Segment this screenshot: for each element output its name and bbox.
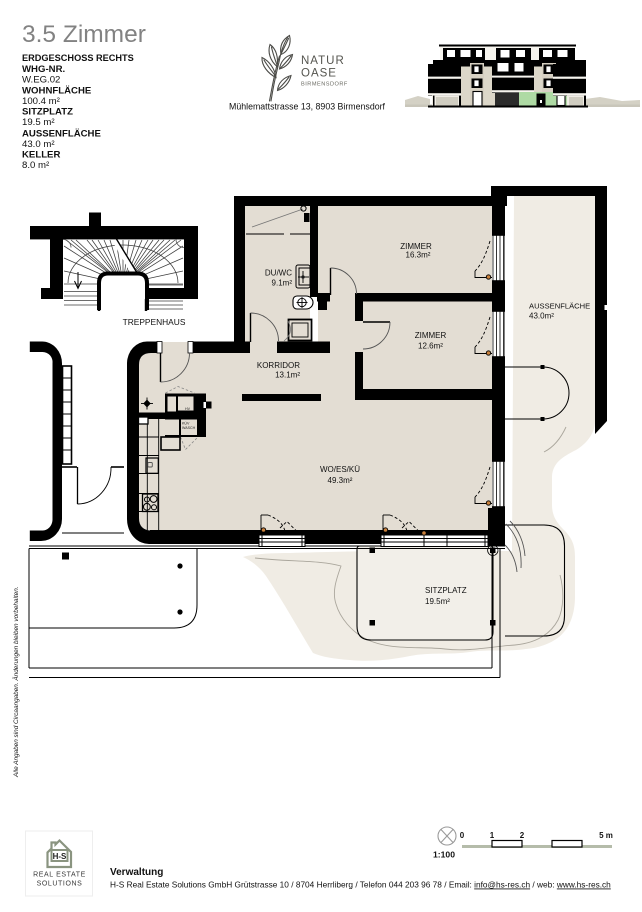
svg-text:WOHNFLÄCHE: WOHNFLÄCHE [22,86,92,97]
svg-text:16.3m²: 16.3m² [406,251,431,260]
svg-text:1: 1 [490,831,495,840]
svg-text:H-S: H-S [53,852,67,861]
svg-text:8.0 m²: 8.0 m² [22,160,50,171]
svg-text:REAL ESTATE: REAL ESTATE [33,872,86,879]
svg-text:WHG-NR.: WHG-NR. [22,64,65,75]
svg-text:9.1m²: 9.1m² [272,279,293,288]
svg-text:12.6m²: 12.6m² [418,342,443,351]
svg-text:HV: HV [185,407,191,411]
svg-text:100.4 m²: 100.4 m² [22,96,61,107]
svg-text:SITZPLATZ: SITZPLATZ [22,107,73,118]
svg-text:19.5m²: 19.5m² [425,597,450,606]
svg-text:WO/ES/KÜ: WO/ES/KÜ [320,465,360,474]
svg-text:SOLUTIONS: SOLUTIONS [37,881,83,888]
svg-text:Mühlemattstrasse 13, 8903 Birm: Mühlemattstrasse 13, 8903 Birmensdorf [229,102,386,112]
svg-text:19.5 m²: 19.5 m² [22,117,55,128]
svg-text:KELLER: KELLER [22,150,60,161]
svg-text:Verwaltung: Verwaltung [110,867,163,878]
svg-text:3.5 Zimmer: 3.5 Zimmer [22,21,146,48]
svg-text:OASE: OASE [301,68,337,80]
svg-text:AUSSENFLÄCHE: AUSSENFLÄCHE [529,302,590,311]
svg-text:49.3m²: 49.3m² [328,476,353,485]
svg-text:43.0 m²: 43.0 m² [22,139,55,150]
svg-text:NATUR: NATUR [301,55,345,67]
svg-text:WASCH: WASCH [182,426,196,430]
svg-text:2: 2 [520,831,525,840]
svg-text:AUSSENFLÄCHE: AUSSENFLÄCHE [22,129,101,140]
svg-text:ZIMMER: ZIMMER [415,331,447,340]
svg-text:0: 0 [460,831,465,840]
svg-text:W.EG.02: W.EG.02 [22,75,60,86]
svg-text:Alle Angaben sind Circaangaben: Alle Angaben sind Circaangaben. Änderung… [12,586,20,778]
svg-text:KORRIDOR: KORRIDOR [257,361,300,370]
svg-text:5 m: 5 m [599,831,613,840]
svg-text:13.1m²: 13.1m² [275,371,300,380]
svg-text:TREPPENHAUS: TREPPENHAUS [123,317,186,327]
svg-text:DU/WC: DU/WC [265,269,292,278]
svg-text:KÜV: KÜV [182,422,190,426]
svg-text:ERDGESCHOSS RECHTS: ERDGESCHOSS RECHTS [22,53,134,63]
svg-text:H-S Real Estate Solutions GmbH: H-S Real Estate Solutions GmbH Grütstras… [110,880,611,890]
svg-text:43.0m²: 43.0m² [529,312,554,321]
svg-text:1:100: 1:100 [433,850,455,860]
svg-text:BIRMENSDORF: BIRMENSDORF [301,82,348,88]
svg-text:SITZPLATZ: SITZPLATZ [425,586,467,595]
